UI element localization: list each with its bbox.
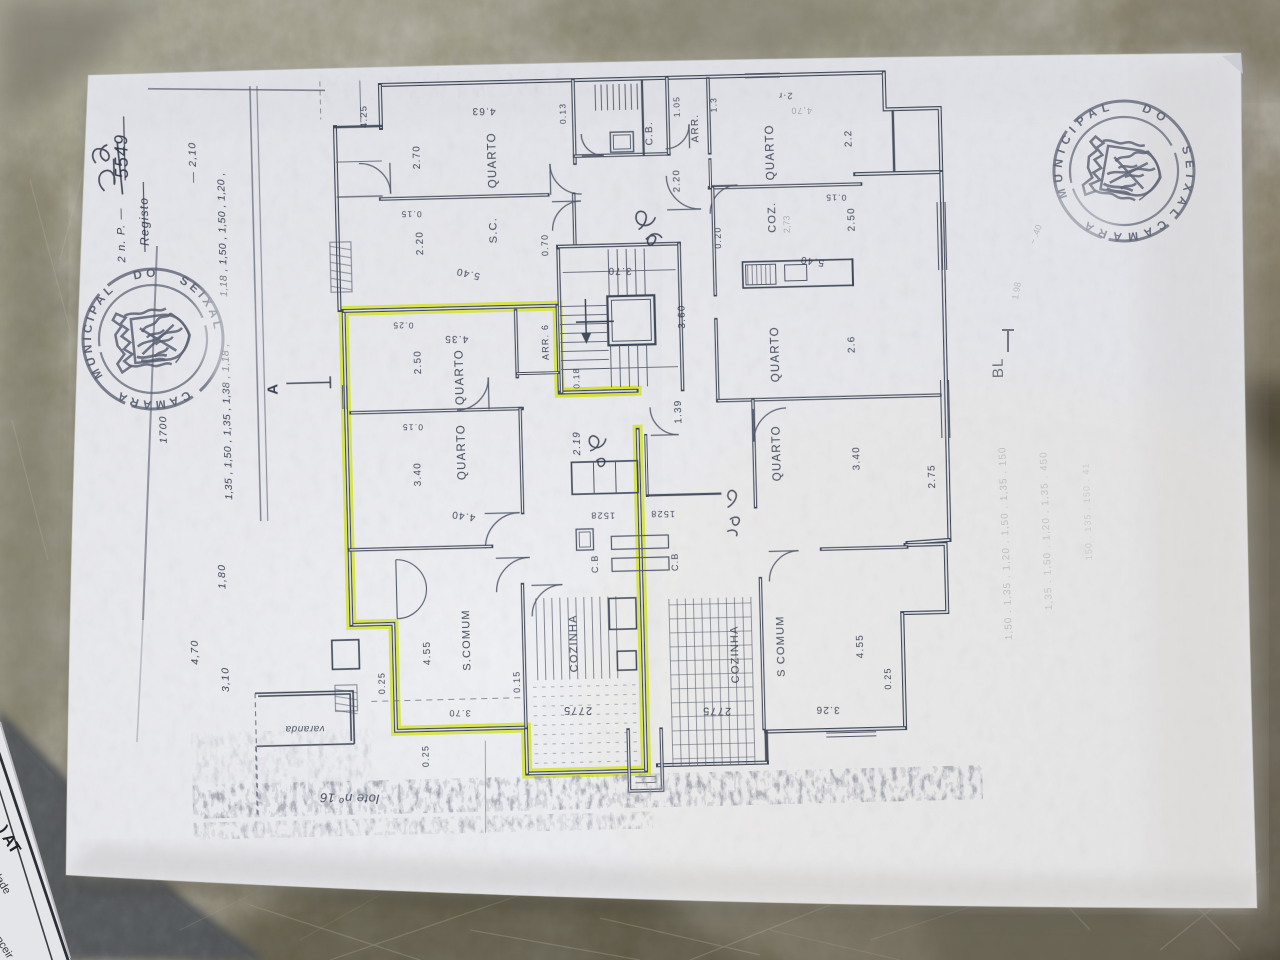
svg-text:1.39: 1.39 [673, 399, 685, 424]
svg-text:0.25: 0.25 [883, 667, 894, 690]
svg-text:0.15: 0.15 [512, 670, 523, 693]
svg-text:0.13: 0.13 [557, 103, 568, 125]
svg-text:1700: 1700 [157, 415, 170, 443]
svg-text:QUARTO: QUARTO [486, 132, 499, 188]
svg-text:0.25: 0.25 [377, 672, 388, 695]
svg-text:4.55: 4.55 [422, 641, 434, 666]
svg-text:BL: BL [990, 358, 1007, 379]
svg-text:2775: 2775 [702, 705, 731, 717]
svg-text:3.40: 3.40 [851, 446, 863, 471]
svg-text:0.25: 0.25 [420, 745, 431, 768]
svg-text:4,70: 4,70 [790, 106, 812, 116]
svg-text:2.2: 2.2 [843, 129, 854, 147]
svg-text:ARR. 6: ARR. 6 [540, 324, 551, 360]
svg-text:2.75: 2.75 [927, 464, 939, 489]
svg-text:0.15: 0.15 [825, 193, 846, 203]
svg-text:S.C.: S.C. [487, 217, 500, 243]
svg-text:ARR.: ARR. [690, 114, 702, 143]
svg-text:COZINHA: COZINHA [567, 614, 580, 672]
svg-text:3.40: 3.40 [412, 462, 424, 487]
svg-text:1.05: 1.05 [671, 96, 682, 118]
svg-text:3,10: 3,10 [219, 667, 232, 693]
svg-text:1528: 1528 [650, 509, 675, 519]
svg-text:1528: 1528 [590, 510, 615, 520]
svg-text:4.35: 4.35 [444, 333, 468, 344]
svg-text:3.60: 3.60 [676, 304, 688, 329]
svg-text:— 2,10: — 2,10 [186, 141, 199, 183]
svg-text:0.70: 0.70 [540, 234, 551, 257]
svg-text:2,73: 2,73 [781, 215, 792, 233]
svg-text:0.15: 0.15 [402, 422, 423, 432]
svg-text:2.20: 2.20 [415, 231, 427, 256]
svg-text:2.20: 2.20 [671, 169, 683, 193]
svg-text:0.25: 0.25 [392, 320, 413, 330]
svg-text:2.50: 2.50 [413, 350, 425, 375]
svg-text:2.50: 2.50 [846, 207, 858, 232]
svg-text:0.18: 0.18 [571, 367, 582, 389]
svg-text:QUARTO: QUARTO [764, 124, 777, 180]
svg-text:COZ.: COZ. [766, 202, 779, 233]
svg-text:2.19: 2.19 [572, 431, 584, 457]
svg-text:QUARTO: QUARTO [455, 424, 468, 480]
svg-text:2 n. P. —: 2 n. P. — [115, 207, 128, 264]
svg-text:0.15: 0.15 [400, 209, 421, 219]
svg-text:2775: 2775 [563, 704, 592, 716]
svg-text:C.B: C.B [670, 552, 680, 571]
svg-text:QUARTO: QUARTO [769, 326, 782, 382]
svg-text:QUARTO: QUARTO [454, 349, 467, 405]
svg-text:QUARTO: QUARTO [771, 425, 784, 481]
svg-text:A: A [264, 383, 281, 395]
svg-text:4,70: 4,70 [189, 639, 202, 665]
svg-text:4.55: 4.55 [855, 634, 867, 659]
svg-text:S COMUM: S COMUM [774, 615, 788, 677]
svg-text:3.70: 3.70 [448, 708, 470, 718]
svg-text:4.63: 4.63 [471, 105, 495, 116]
svg-text:C.B: C.B [590, 554, 600, 573]
svg-text:1,80: 1,80 [216, 564, 229, 590]
svg-text:2.6: 2.6 [846, 335, 857, 353]
svg-text:3.70: 3.70 [607, 265, 631, 276]
svg-text:0.20: 0.20 [713, 226, 724, 249]
svg-text:S.COMUM: S.COMUM [460, 609, 474, 671]
svg-text:3.26: 3.26 [815, 704, 839, 715]
svg-text:1.3: 1.3 [708, 97, 718, 113]
svg-text:2·r: 2·r [778, 91, 793, 101]
svg-text:COZINHA: COZINHA [729, 625, 742, 683]
svg-text:2.70: 2.70 [411, 145, 423, 170]
svg-text:C.B.: C.B. [644, 121, 656, 146]
